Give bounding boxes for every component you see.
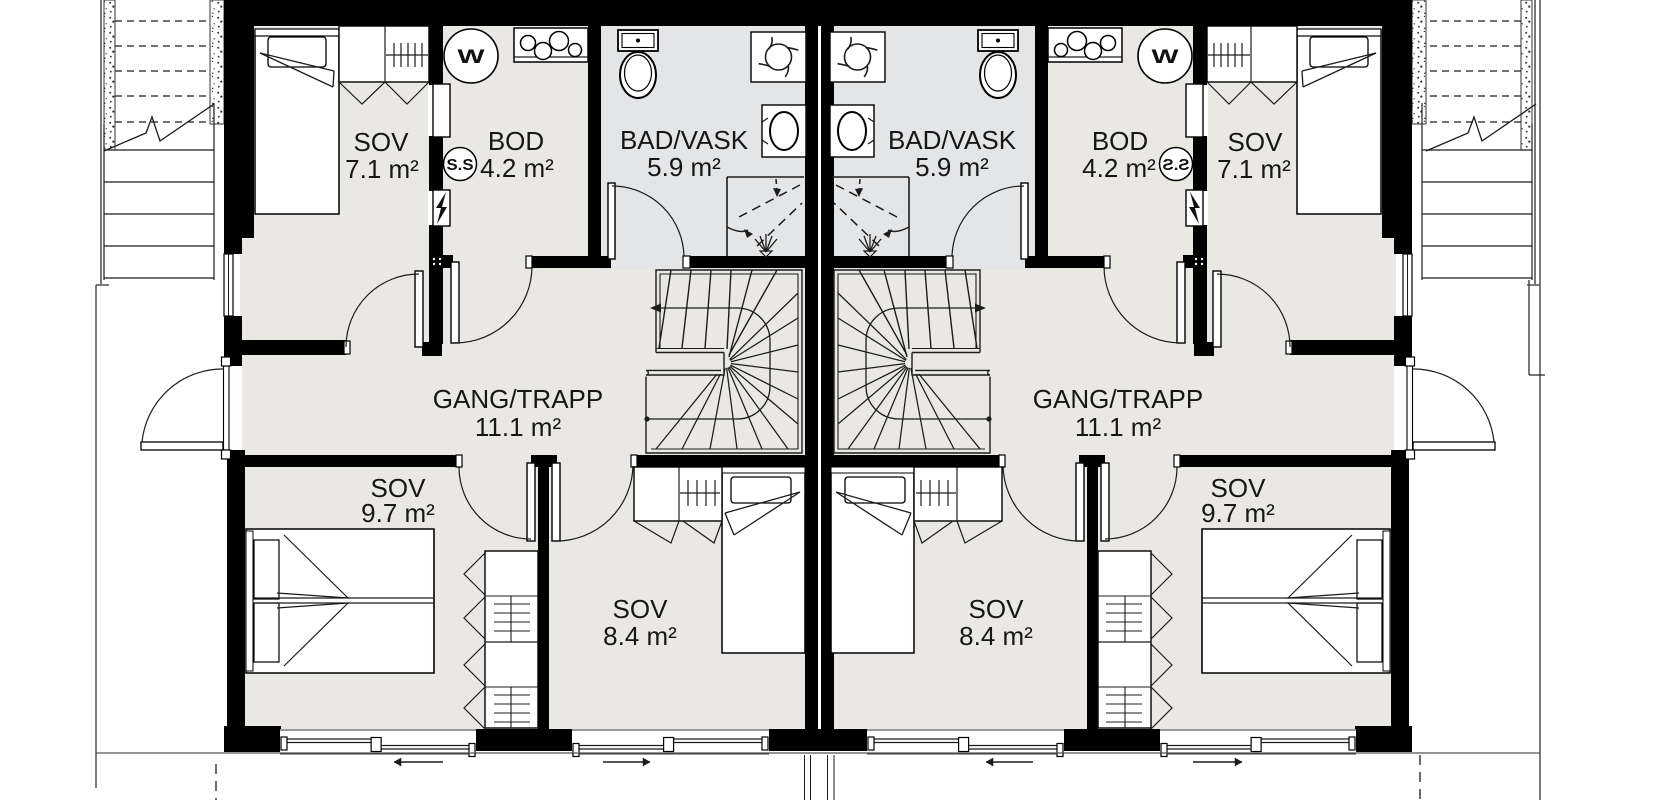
svg-text:S.S: S.S (447, 157, 474, 174)
svg-text:8.4 m²: 8.4 m² (603, 621, 677, 651)
svg-text:W: W (458, 47, 485, 68)
svg-text:9.7 m²: 9.7 m² (361, 498, 435, 528)
svg-text:7.1 m²: 7.1 m² (345, 154, 419, 184)
svg-text:GANG/TRAPP: GANG/TRAPP (433, 384, 603, 414)
svg-text:BAD/VASK: BAD/VASK (888, 125, 1017, 155)
svg-text:4.2 m²: 4.2 m² (1082, 153, 1156, 183)
svg-text:BAD/VASK: BAD/VASK (620, 125, 749, 155)
svg-text:5.9 m²: 5.9 m² (647, 152, 721, 182)
svg-text:9.7 m²: 9.7 m² (1201, 498, 1275, 528)
svg-text:5.9 m²: 5.9 m² (915, 152, 989, 182)
svg-text:BOD: BOD (1092, 126, 1148, 156)
svg-text:GANG/TRAPP: GANG/TRAPP (1033, 384, 1203, 414)
svg-text:11.1 m²: 11.1 m² (1075, 412, 1162, 442)
svg-text:11.1 m²: 11.1 m² (475, 412, 562, 442)
svg-text:W: W (1152, 47, 1179, 68)
svg-text:7.1 m²: 7.1 m² (1217, 154, 1291, 184)
svg-text:SOV: SOV (969, 594, 1025, 624)
svg-text:BOD: BOD (488, 126, 544, 156)
svg-text:4.2 m²: 4.2 m² (480, 153, 554, 183)
svg-text:SOV: SOV (613, 594, 669, 624)
svg-text:SOV: SOV (354, 127, 410, 157)
svg-text:SOV: SOV (1228, 127, 1284, 157)
svg-text:S.S: S.S (1162, 157, 1189, 174)
svg-text:8.4 m²: 8.4 m² (959, 621, 1033, 651)
